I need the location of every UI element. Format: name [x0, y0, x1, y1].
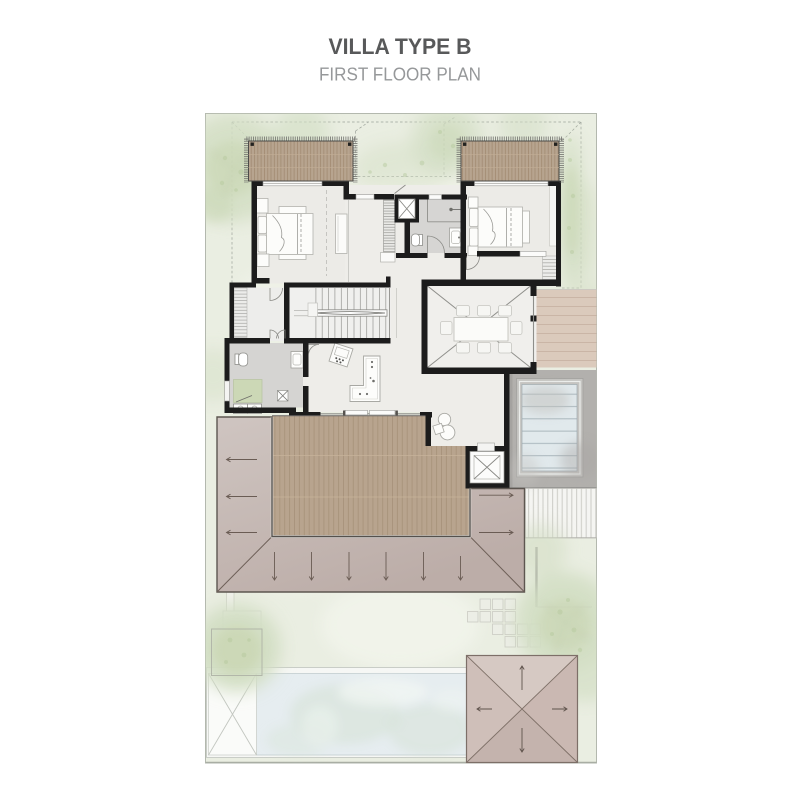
svg-text:VILLA TYPE B: VILLA TYPE B — [329, 34, 472, 59]
svg-text:FIRST FLOOR PLAN: FIRST FLOOR PLAN — [319, 64, 481, 85]
